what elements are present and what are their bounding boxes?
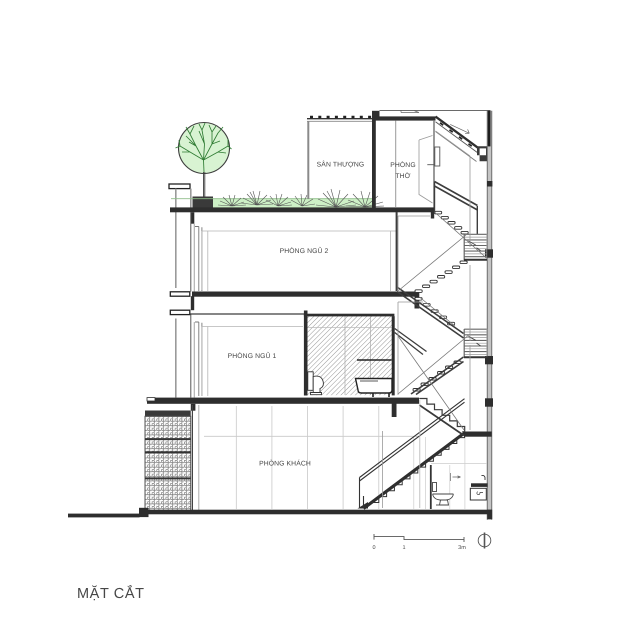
svg-text:MẶT CẮT: MẶT CẮT	[77, 585, 145, 602]
svg-text:THỜ: THỜ	[395, 172, 410, 180]
svg-text:PHÒNG KHÁCH: PHÒNG KHÁCH	[259, 460, 311, 468]
svg-text:PHÒNG NGỦ 1: PHÒNG NGỦ 1	[228, 351, 277, 360]
svg-text:1: 1	[402, 545, 405, 551]
svg-text:PHÒNG: PHÒNG	[390, 161, 415, 169]
svg-text:0: 0	[372, 545, 375, 551]
svg-text:3m: 3m	[458, 545, 466, 551]
svg-text:SÂN THƯỢNG: SÂN THƯỢNG	[317, 161, 365, 169]
svg-text:PHÒNG NGỦ 2: PHÒNG NGỦ 2	[280, 246, 329, 255]
